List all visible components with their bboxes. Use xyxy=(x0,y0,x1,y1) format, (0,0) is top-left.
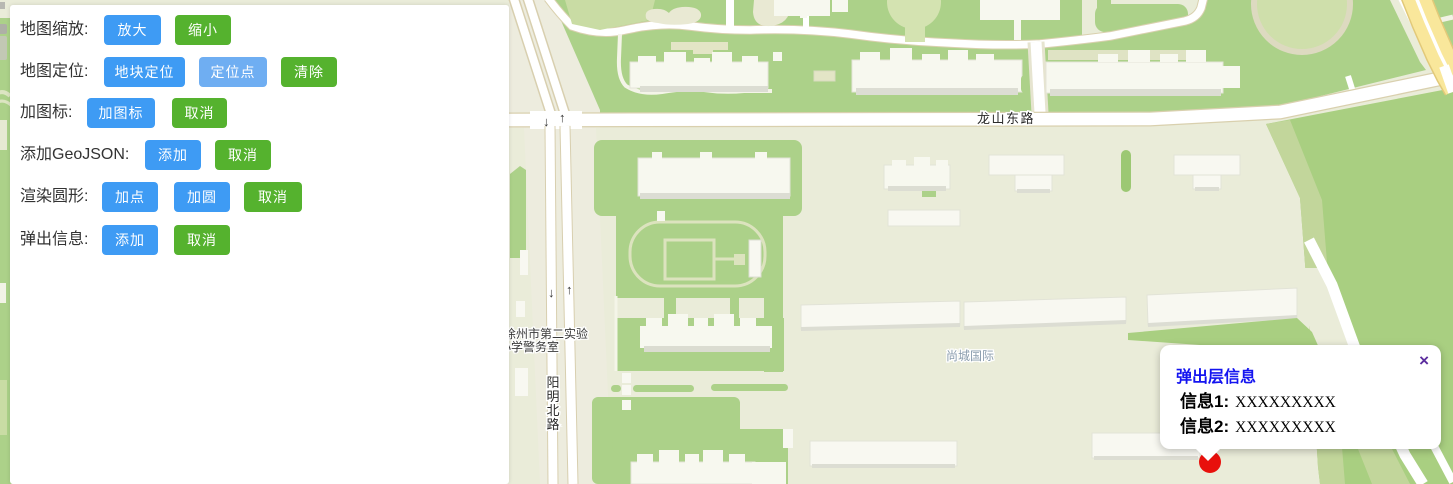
svg-text:龙山东路: 龙山东路 xyxy=(977,111,1035,126)
svg-text:尚城国际: 尚城国际 xyxy=(946,349,994,363)
svg-text:↑: ↑ xyxy=(559,110,566,125)
svg-text:↓: ↓ xyxy=(543,114,550,129)
svg-text:路: 路 xyxy=(546,417,559,432)
svg-text:北: 北 xyxy=(546,403,559,418)
svg-text:阳: 阳 xyxy=(546,375,559,390)
svg-text:明: 明 xyxy=(546,389,559,404)
svg-text:↓: ↓ xyxy=(548,285,555,300)
svg-text:↑: ↑ xyxy=(566,282,573,297)
svg-text:徐州市第二实验: 徐州市第二实验 xyxy=(504,326,588,341)
